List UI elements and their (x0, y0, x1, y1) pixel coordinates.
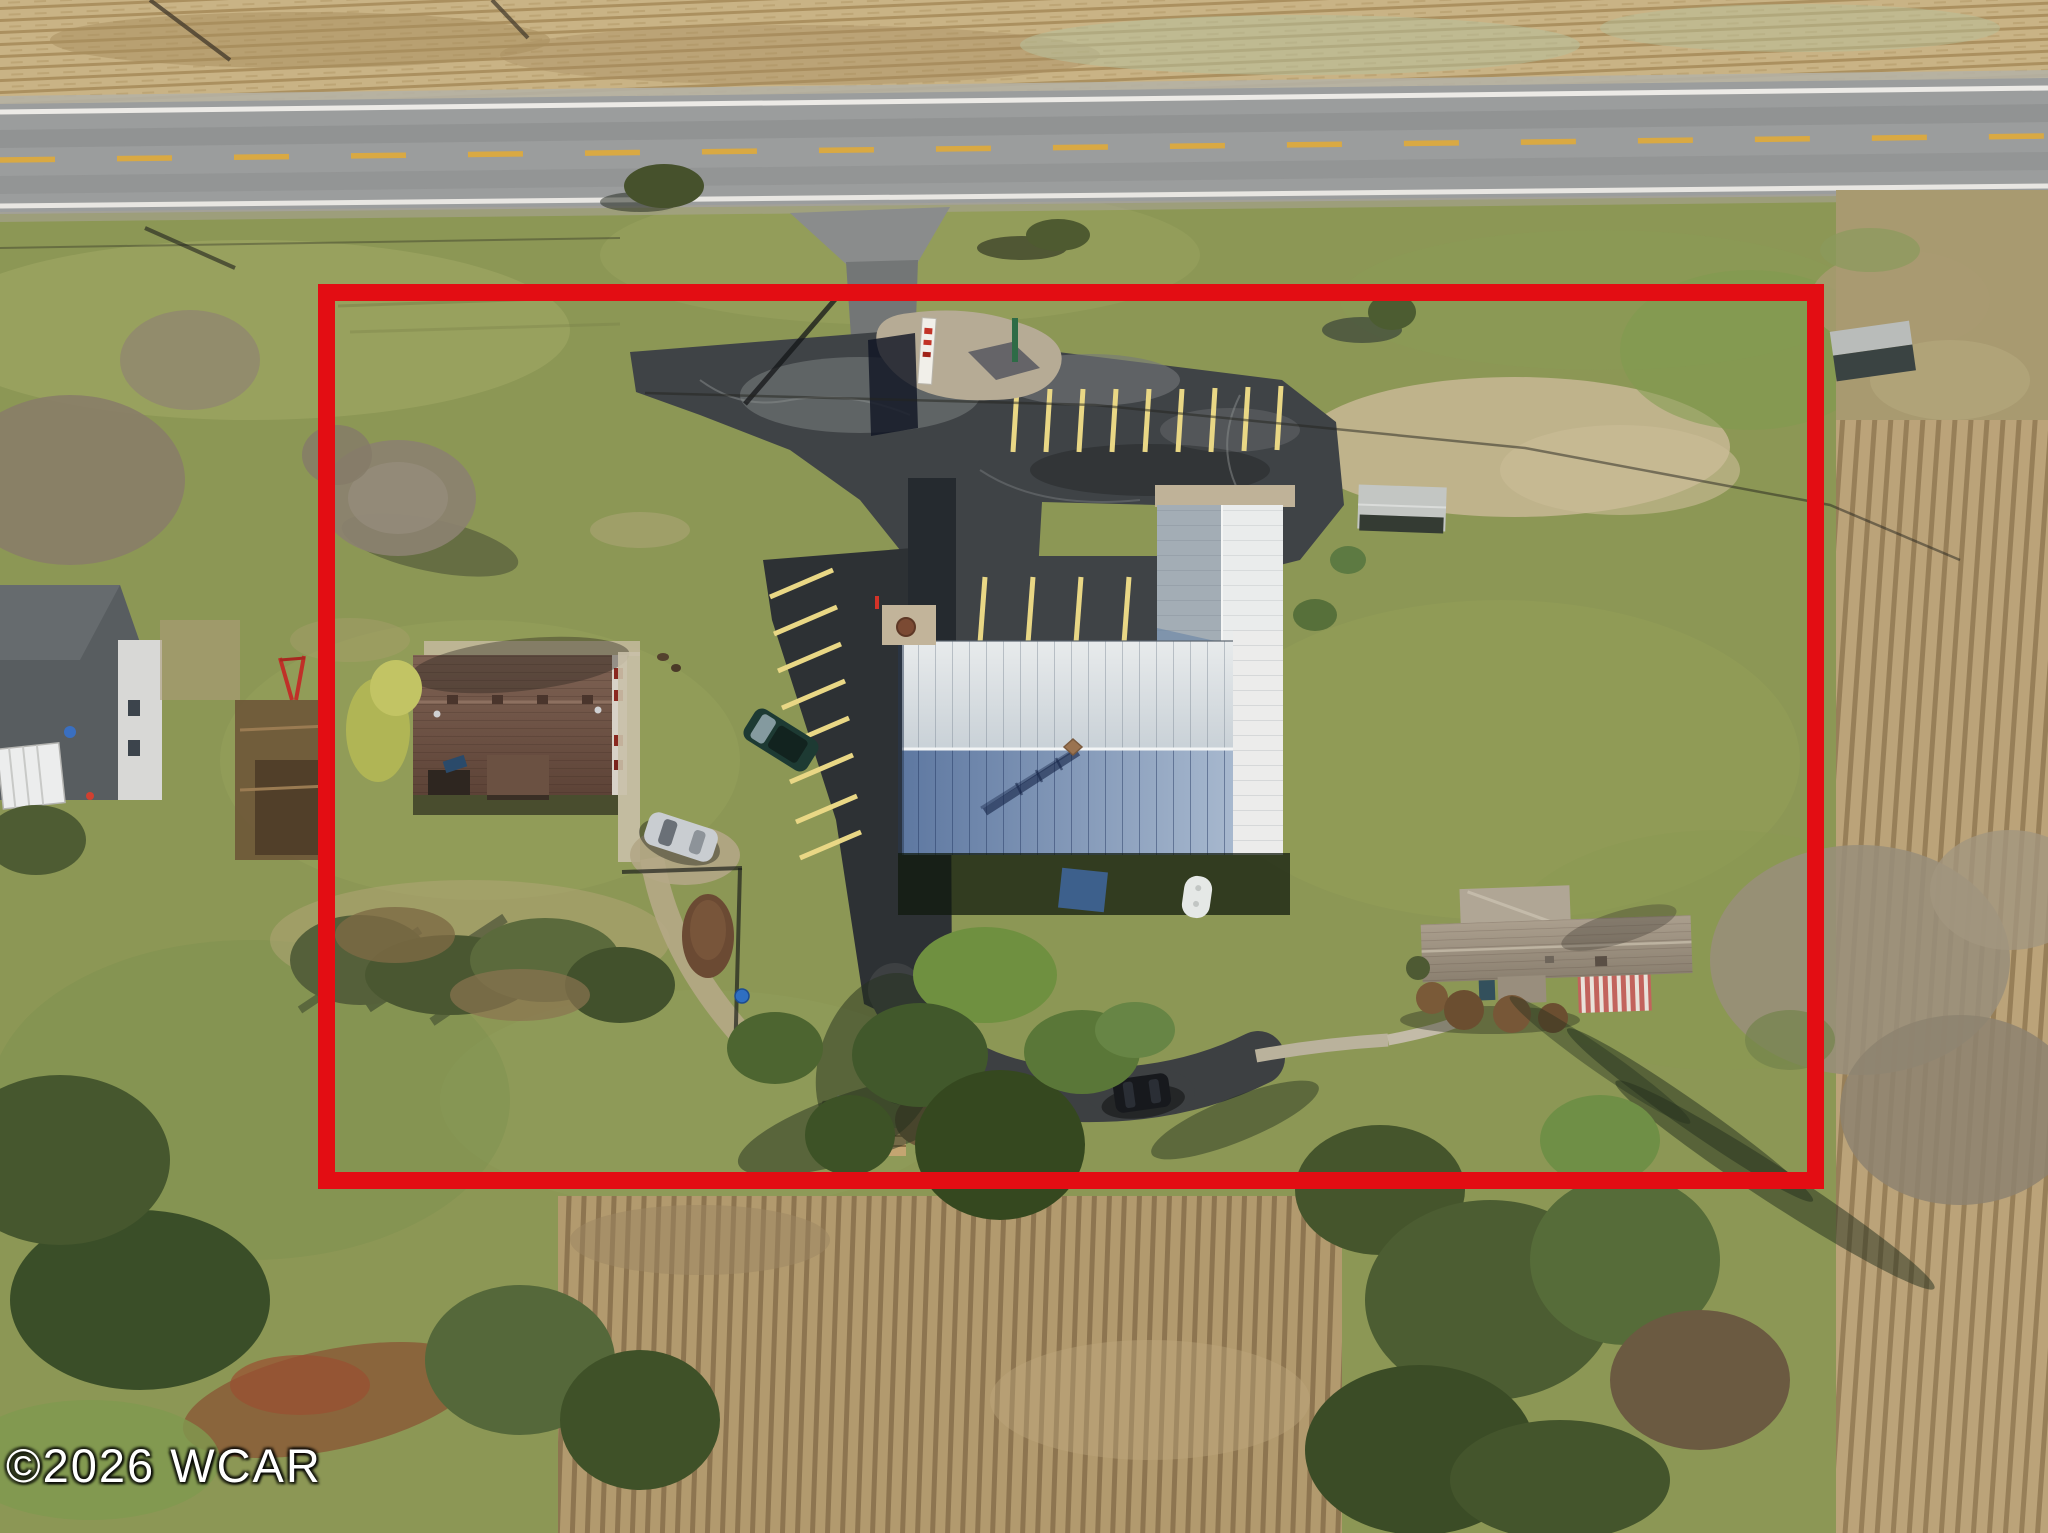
striped-awning (1578, 974, 1652, 1013)
scene (0, 0, 2048, 1533)
marker-flag (875, 596, 879, 609)
east-walk (618, 652, 640, 862)
dirt-path (160, 620, 240, 700)
building-shadow (413, 795, 618, 815)
building-extension (487, 755, 549, 800)
blue-barrel (64, 726, 76, 738)
sign-shadow (868, 333, 918, 436)
blue-bucket (735, 989, 749, 1003)
neighbor-house-wall (118, 640, 162, 800)
watermark: ©2026 WCAR (6, 1438, 322, 1493)
basketball-pole (1012, 318, 1018, 362)
house-window-wall (1479, 980, 1496, 1001)
blue-tarp (1058, 868, 1108, 913)
gravel-strip (1155, 485, 1295, 507)
garage-opening (428, 770, 470, 795)
box-trailer (0, 743, 65, 809)
pavilion (1357, 484, 1447, 533)
well-cap (897, 618, 915, 636)
bush (370, 660, 422, 716)
house-chimney (1595, 956, 1607, 966)
aerial-photo: ©2026 WCAR (0, 0, 2048, 1533)
